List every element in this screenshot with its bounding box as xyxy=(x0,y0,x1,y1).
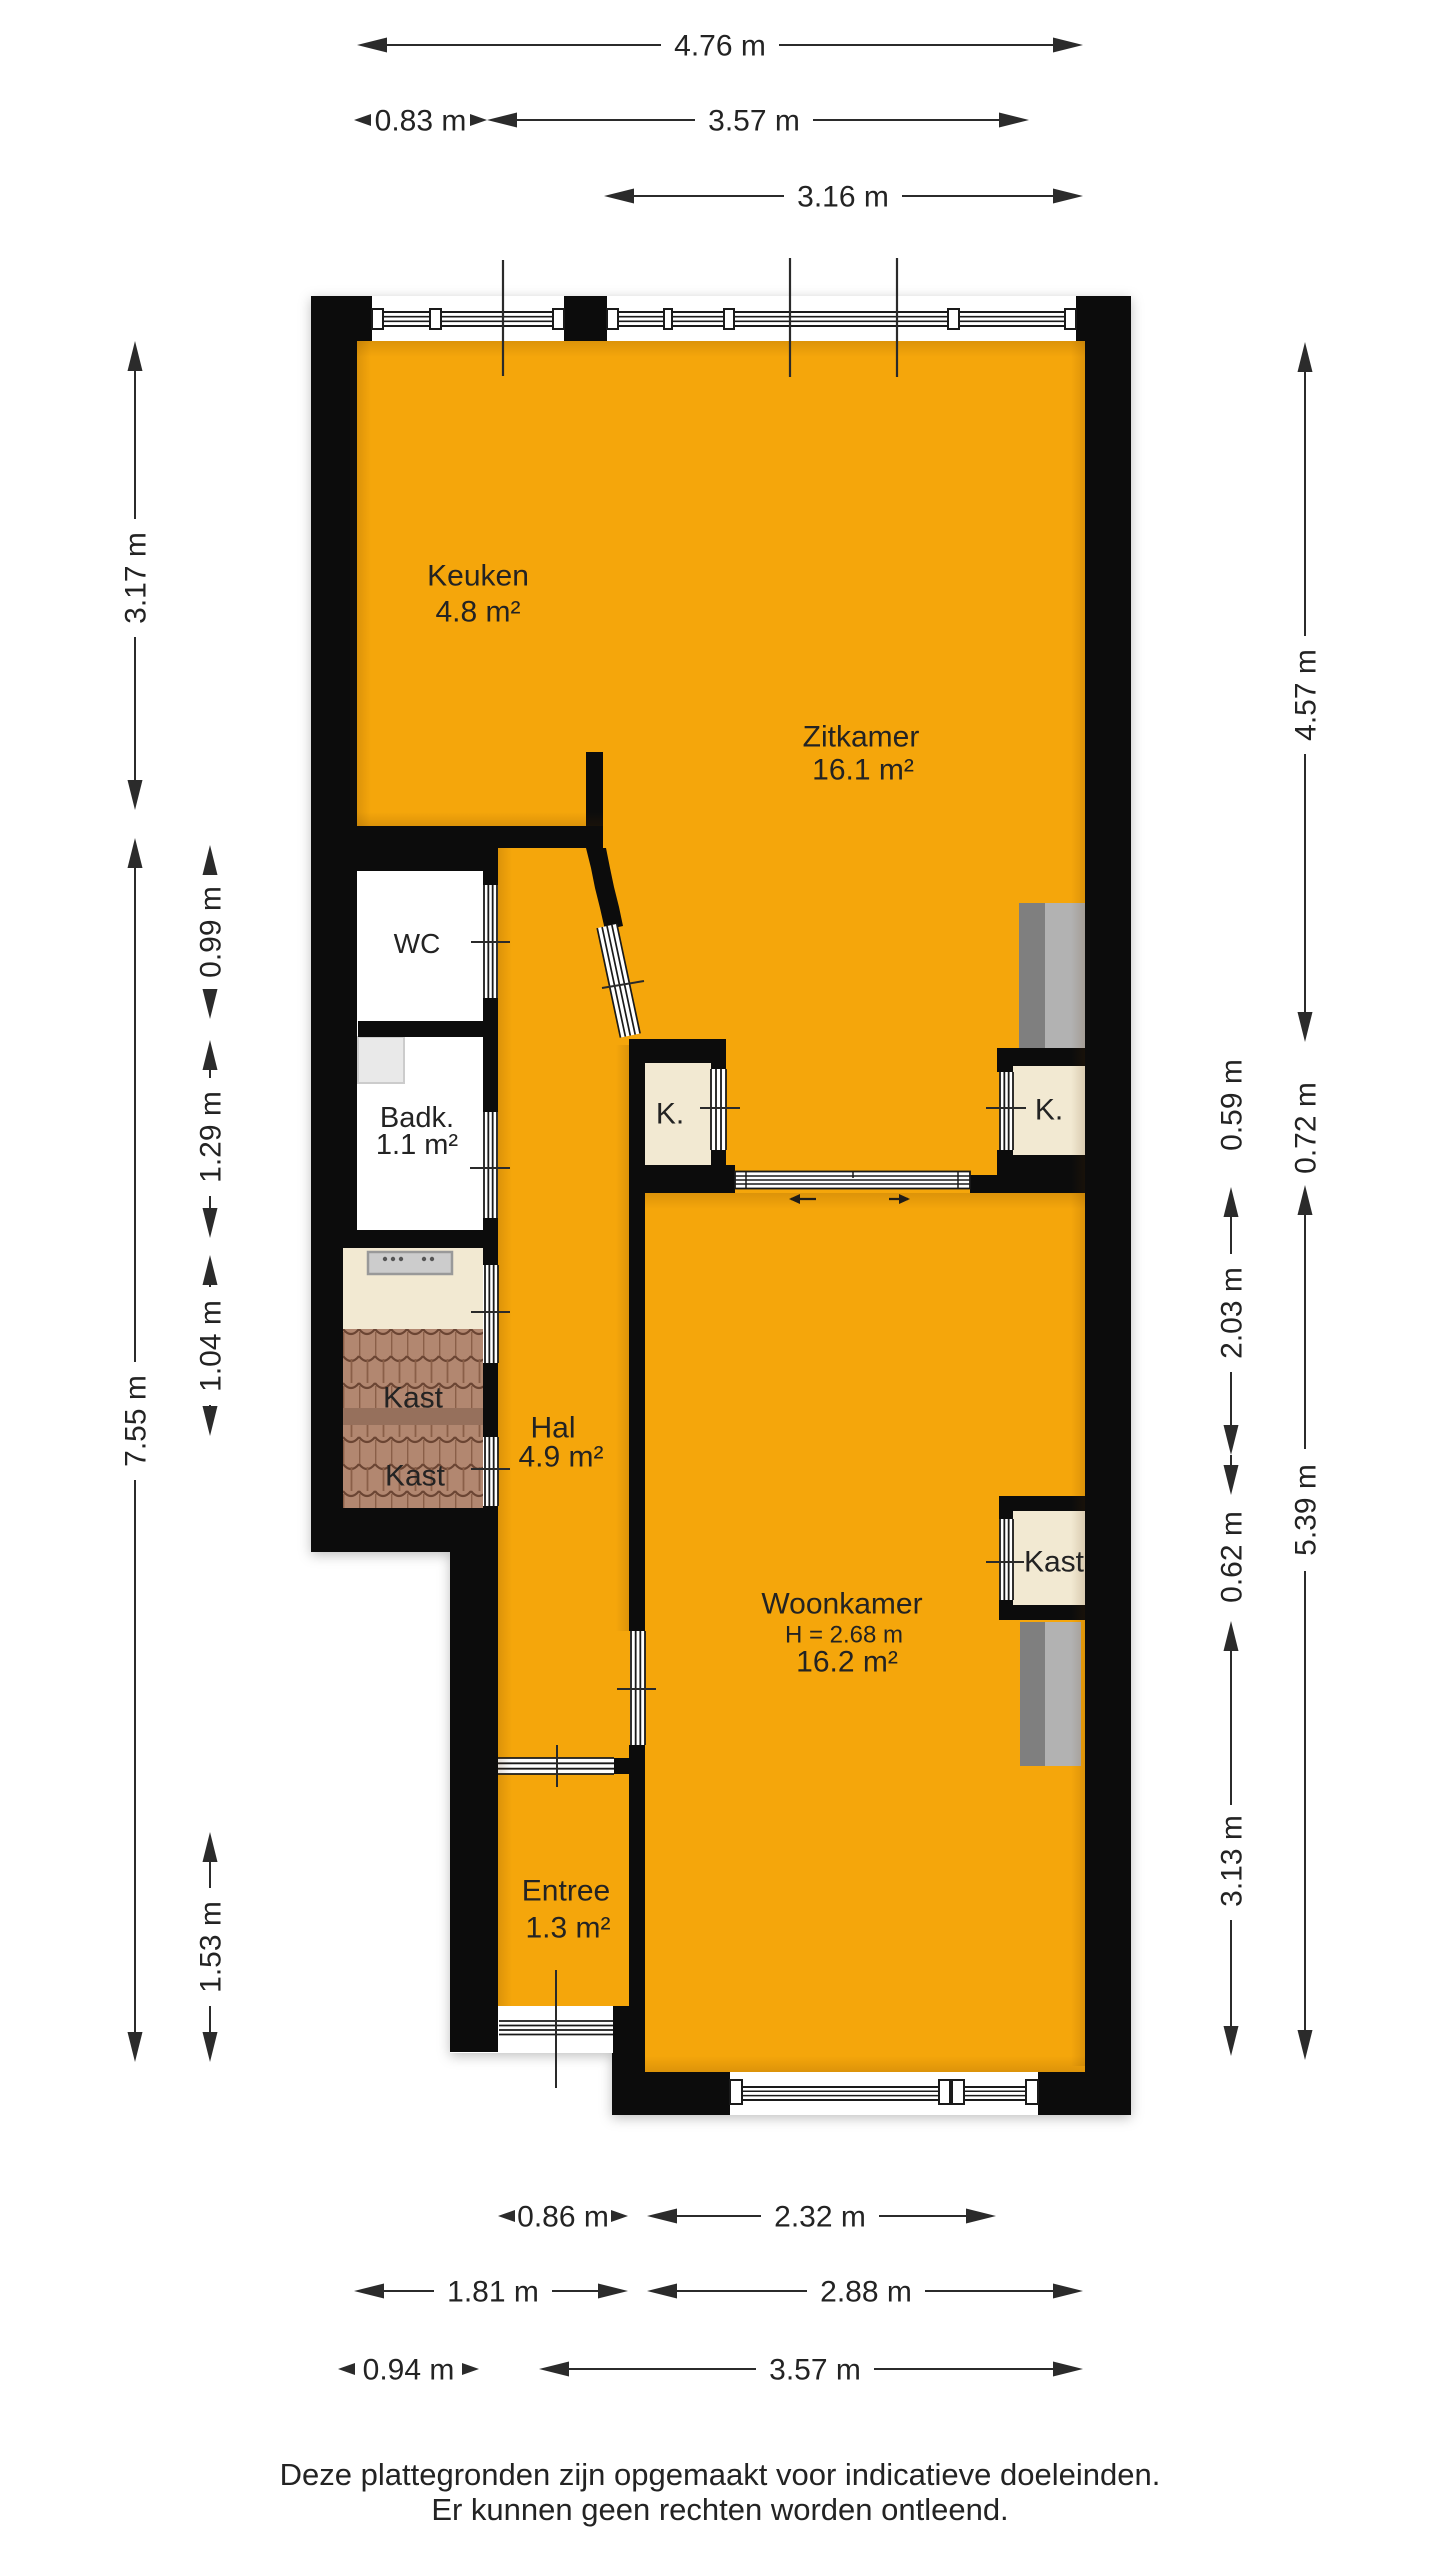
svg-text:Kast: Kast xyxy=(383,1382,444,1415)
svg-text:0.62 m: 0.62 m xyxy=(1216,1511,1249,1603)
svg-text:K.: K. xyxy=(1035,1094,1063,1127)
svg-text:H = 2.68 m: H = 2.68 m xyxy=(785,1621,903,1648)
svg-text:3.57 m: 3.57 m xyxy=(769,2354,861,2387)
svg-text:Er kunnen geen rechten worden: Er kunnen geen rechten worden ontleend. xyxy=(431,2492,1008,2527)
svg-text:4.57 m: 4.57 m xyxy=(1290,649,1323,741)
svg-text:1.53 m: 1.53 m xyxy=(195,1901,228,1993)
svg-text:Woonkamer: Woonkamer xyxy=(761,1588,922,1621)
svg-text:4.76 m: 4.76 m xyxy=(674,30,766,63)
svg-text:3.16 m: 3.16 m xyxy=(797,181,889,214)
svg-text:5.39 m: 5.39 m xyxy=(1290,1464,1323,1556)
svg-text:16.2 m²: 16.2 m² xyxy=(796,1646,898,1679)
svg-text:3.13 m: 3.13 m xyxy=(1216,1815,1249,1907)
svg-text:4.8 m²: 4.8 m² xyxy=(435,596,520,629)
svg-text:Kast: Kast xyxy=(1024,1546,1085,1579)
svg-text:0.59 m: 0.59 m xyxy=(1216,1059,1249,1151)
svg-text:16.1 m²: 16.1 m² xyxy=(812,754,914,787)
svg-text:1.29 m: 1.29 m xyxy=(195,1091,228,1183)
svg-text:0.99 m: 0.99 m xyxy=(195,886,228,978)
svg-text:1.3 m²: 1.3 m² xyxy=(525,1912,610,1945)
svg-text:7.55 m: 7.55 m xyxy=(120,1375,153,1467)
svg-text:3.57 m: 3.57 m xyxy=(708,105,800,138)
svg-text:Zitkamer: Zitkamer xyxy=(803,721,920,754)
svg-text:0.83 m: 0.83 m xyxy=(375,105,467,138)
svg-text:2.03 m: 2.03 m xyxy=(1216,1267,1249,1359)
svg-text:2.88 m: 2.88 m xyxy=(820,2276,912,2309)
svg-text:1.04 m: 1.04 m xyxy=(195,1300,228,1392)
svg-text:K.: K. xyxy=(656,1098,684,1131)
svg-text:Entree: Entree xyxy=(522,1875,610,1908)
svg-text:Deze plattegronden zijn opgema: Deze plattegronden zijn opgemaakt voor i… xyxy=(280,2457,1161,2492)
svg-text:0.72 m: 0.72 m xyxy=(1290,1082,1323,1174)
svg-text:4.9 m²: 4.9 m² xyxy=(518,1441,603,1474)
svg-text:Kast: Kast xyxy=(385,1460,446,1493)
svg-text:2.32 m: 2.32 m xyxy=(774,2201,866,2234)
svg-text:1.81 m: 1.81 m xyxy=(447,2276,539,2309)
svg-text:3.17 m: 3.17 m xyxy=(120,532,153,624)
svg-text:1.1 m²: 1.1 m² xyxy=(376,1129,459,1161)
svg-text:WC: WC xyxy=(394,928,441,959)
svg-text:0.86 m: 0.86 m xyxy=(517,2201,609,2234)
svg-text:0.94 m: 0.94 m xyxy=(363,2354,455,2387)
svg-text:Keuken: Keuken xyxy=(427,560,529,593)
